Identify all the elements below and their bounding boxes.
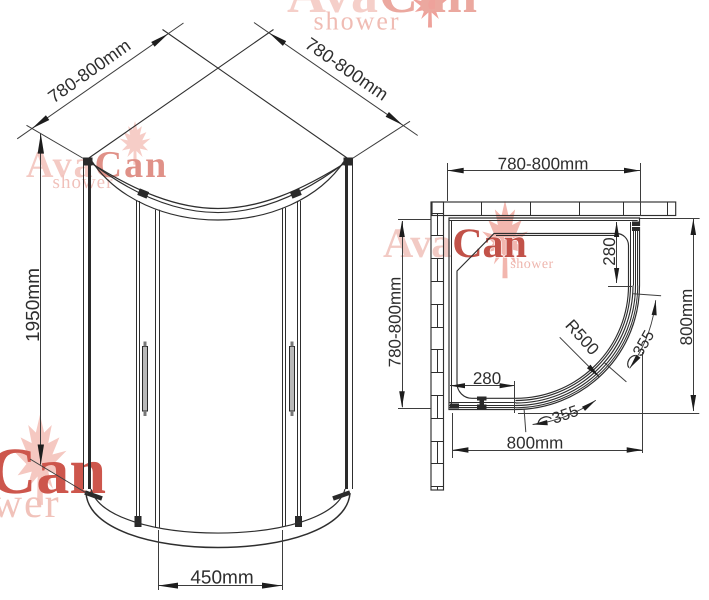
svg-text:800mm: 800mm: [677, 289, 696, 346]
svg-text:1950mm: 1950mm: [23, 268, 44, 342]
svg-text:shower: shower: [313, 7, 400, 36]
svg-text:shower: shower: [510, 257, 553, 272]
svg-text:780-800mm: 780-800mm: [385, 277, 404, 368]
svg-text:780-800mm: 780-800mm: [498, 154, 589, 173]
svg-text:450mm: 450mm: [190, 568, 253, 589]
svg-text:280: 280: [473, 369, 501, 388]
svg-text:AvaCan: AvaCan: [383, 221, 527, 267]
svg-text:800mm: 800mm: [507, 433, 564, 452]
svg-text:280: 280: [600, 237, 619, 265]
svg-text:shower: shower: [0, 481, 61, 527]
